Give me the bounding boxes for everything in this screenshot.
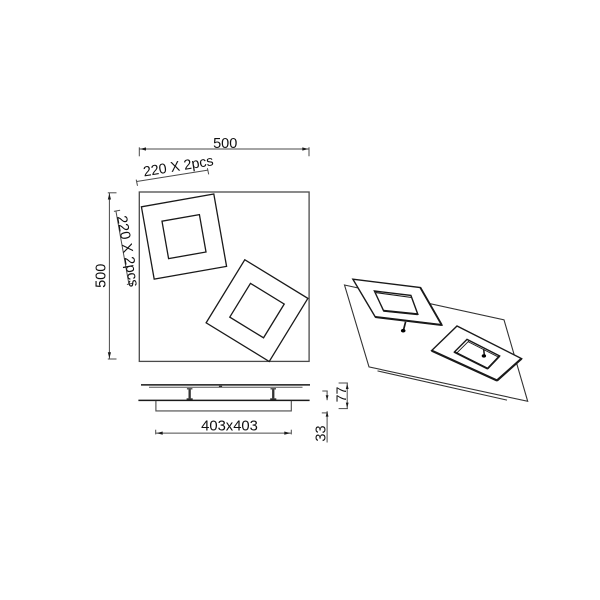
- svg-text:220 X 2pcs: 220 X 2pcs: [142, 153, 215, 180]
- svg-text:77: 77: [334, 387, 350, 403]
- svg-text:220 X 2pcs: 220 X 2pcs: [113, 214, 141, 288]
- svg-text:403x403: 403x403: [201, 418, 258, 434]
- svg-text:500: 500: [93, 264, 109, 288]
- svg-text:33: 33: [314, 425, 330, 441]
- svg-text:500: 500: [213, 136, 237, 152]
